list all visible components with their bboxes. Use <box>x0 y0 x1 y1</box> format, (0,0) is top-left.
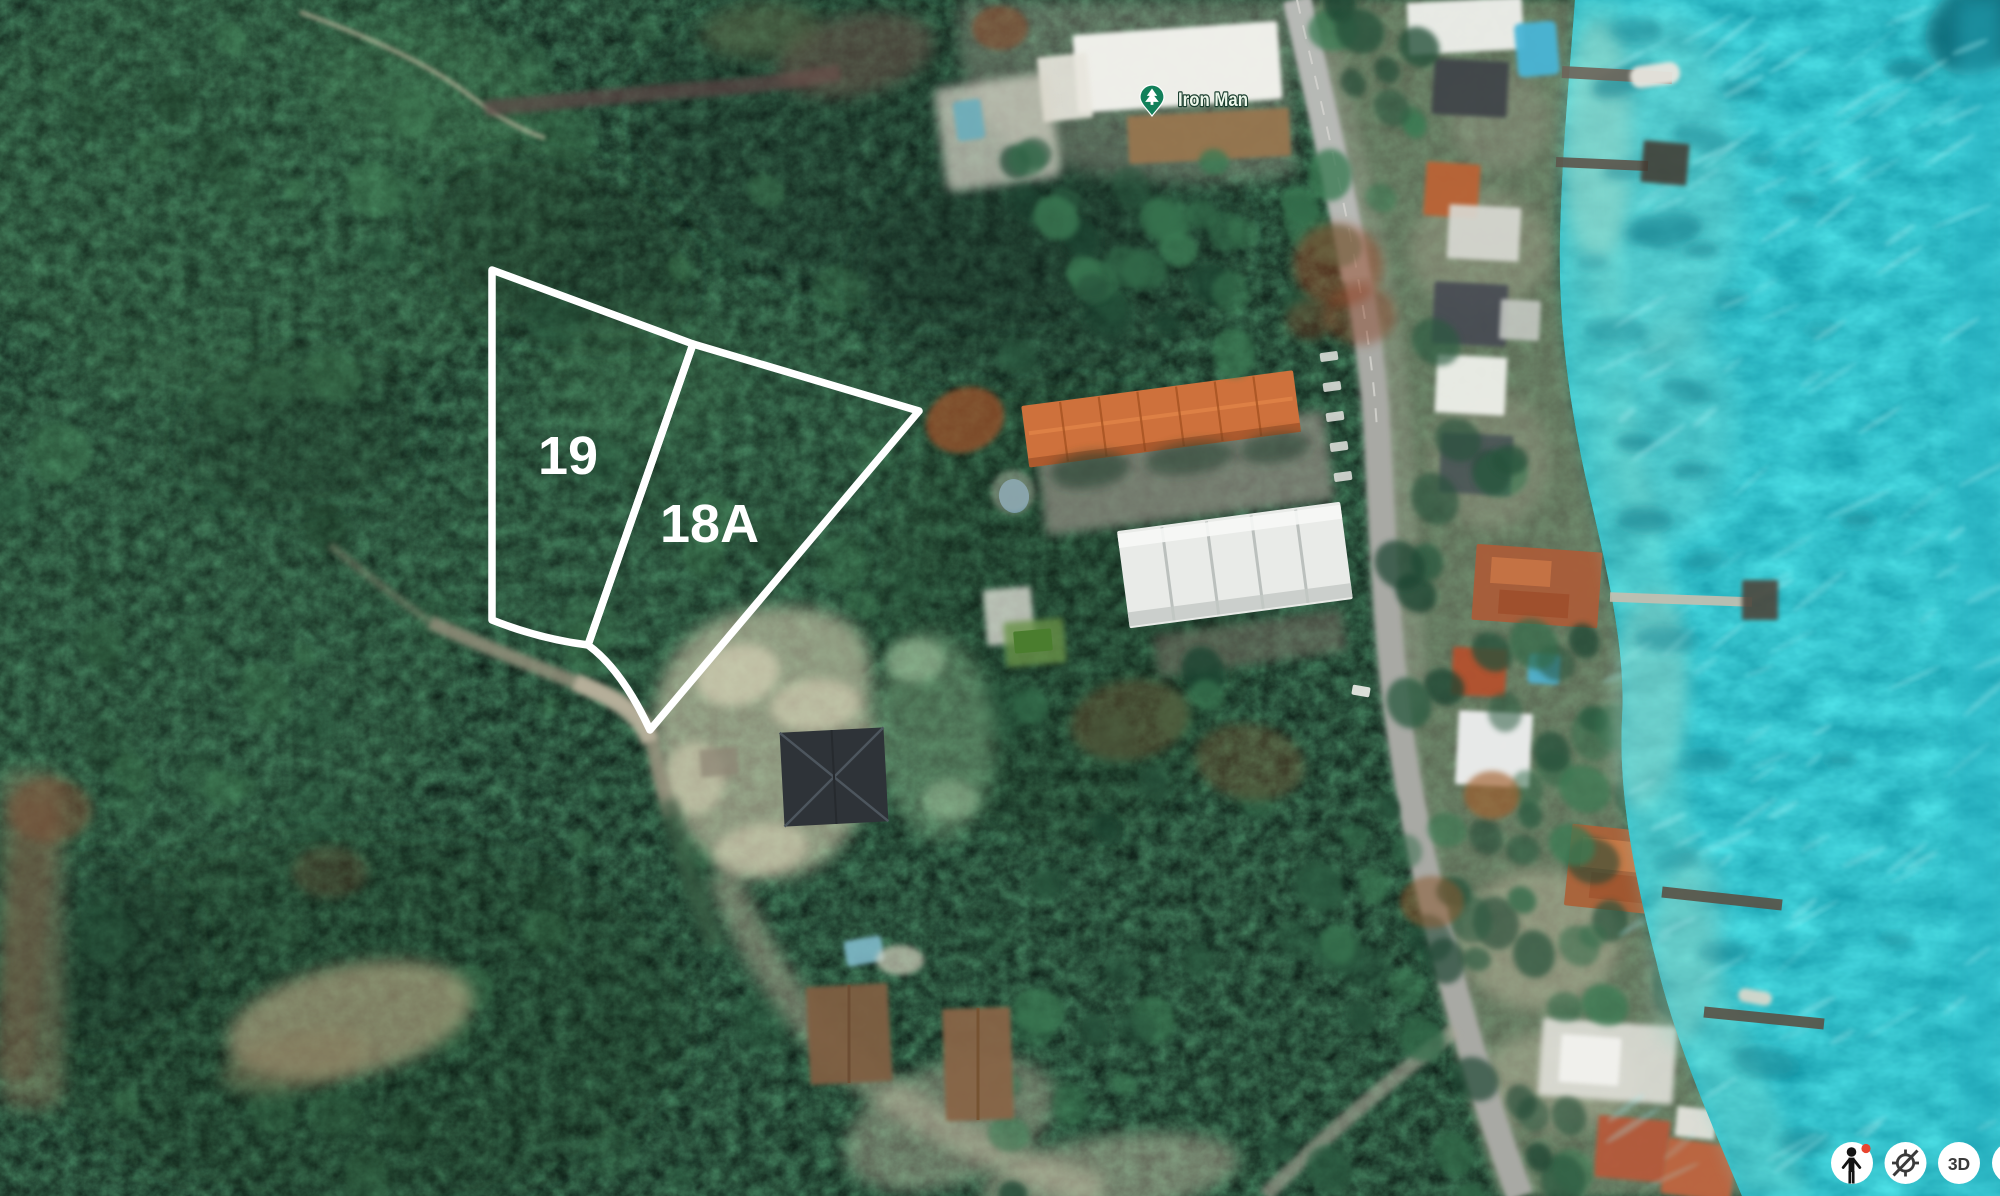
svg-text:18A: 18A <box>660 494 759 554</box>
svg-text:Iron Man: Iron Man <box>1178 89 1248 111</box>
svg-text:19: 19 <box>538 426 598 486</box>
svg-text:3D: 3D <box>1948 1154 1970 1174</box>
